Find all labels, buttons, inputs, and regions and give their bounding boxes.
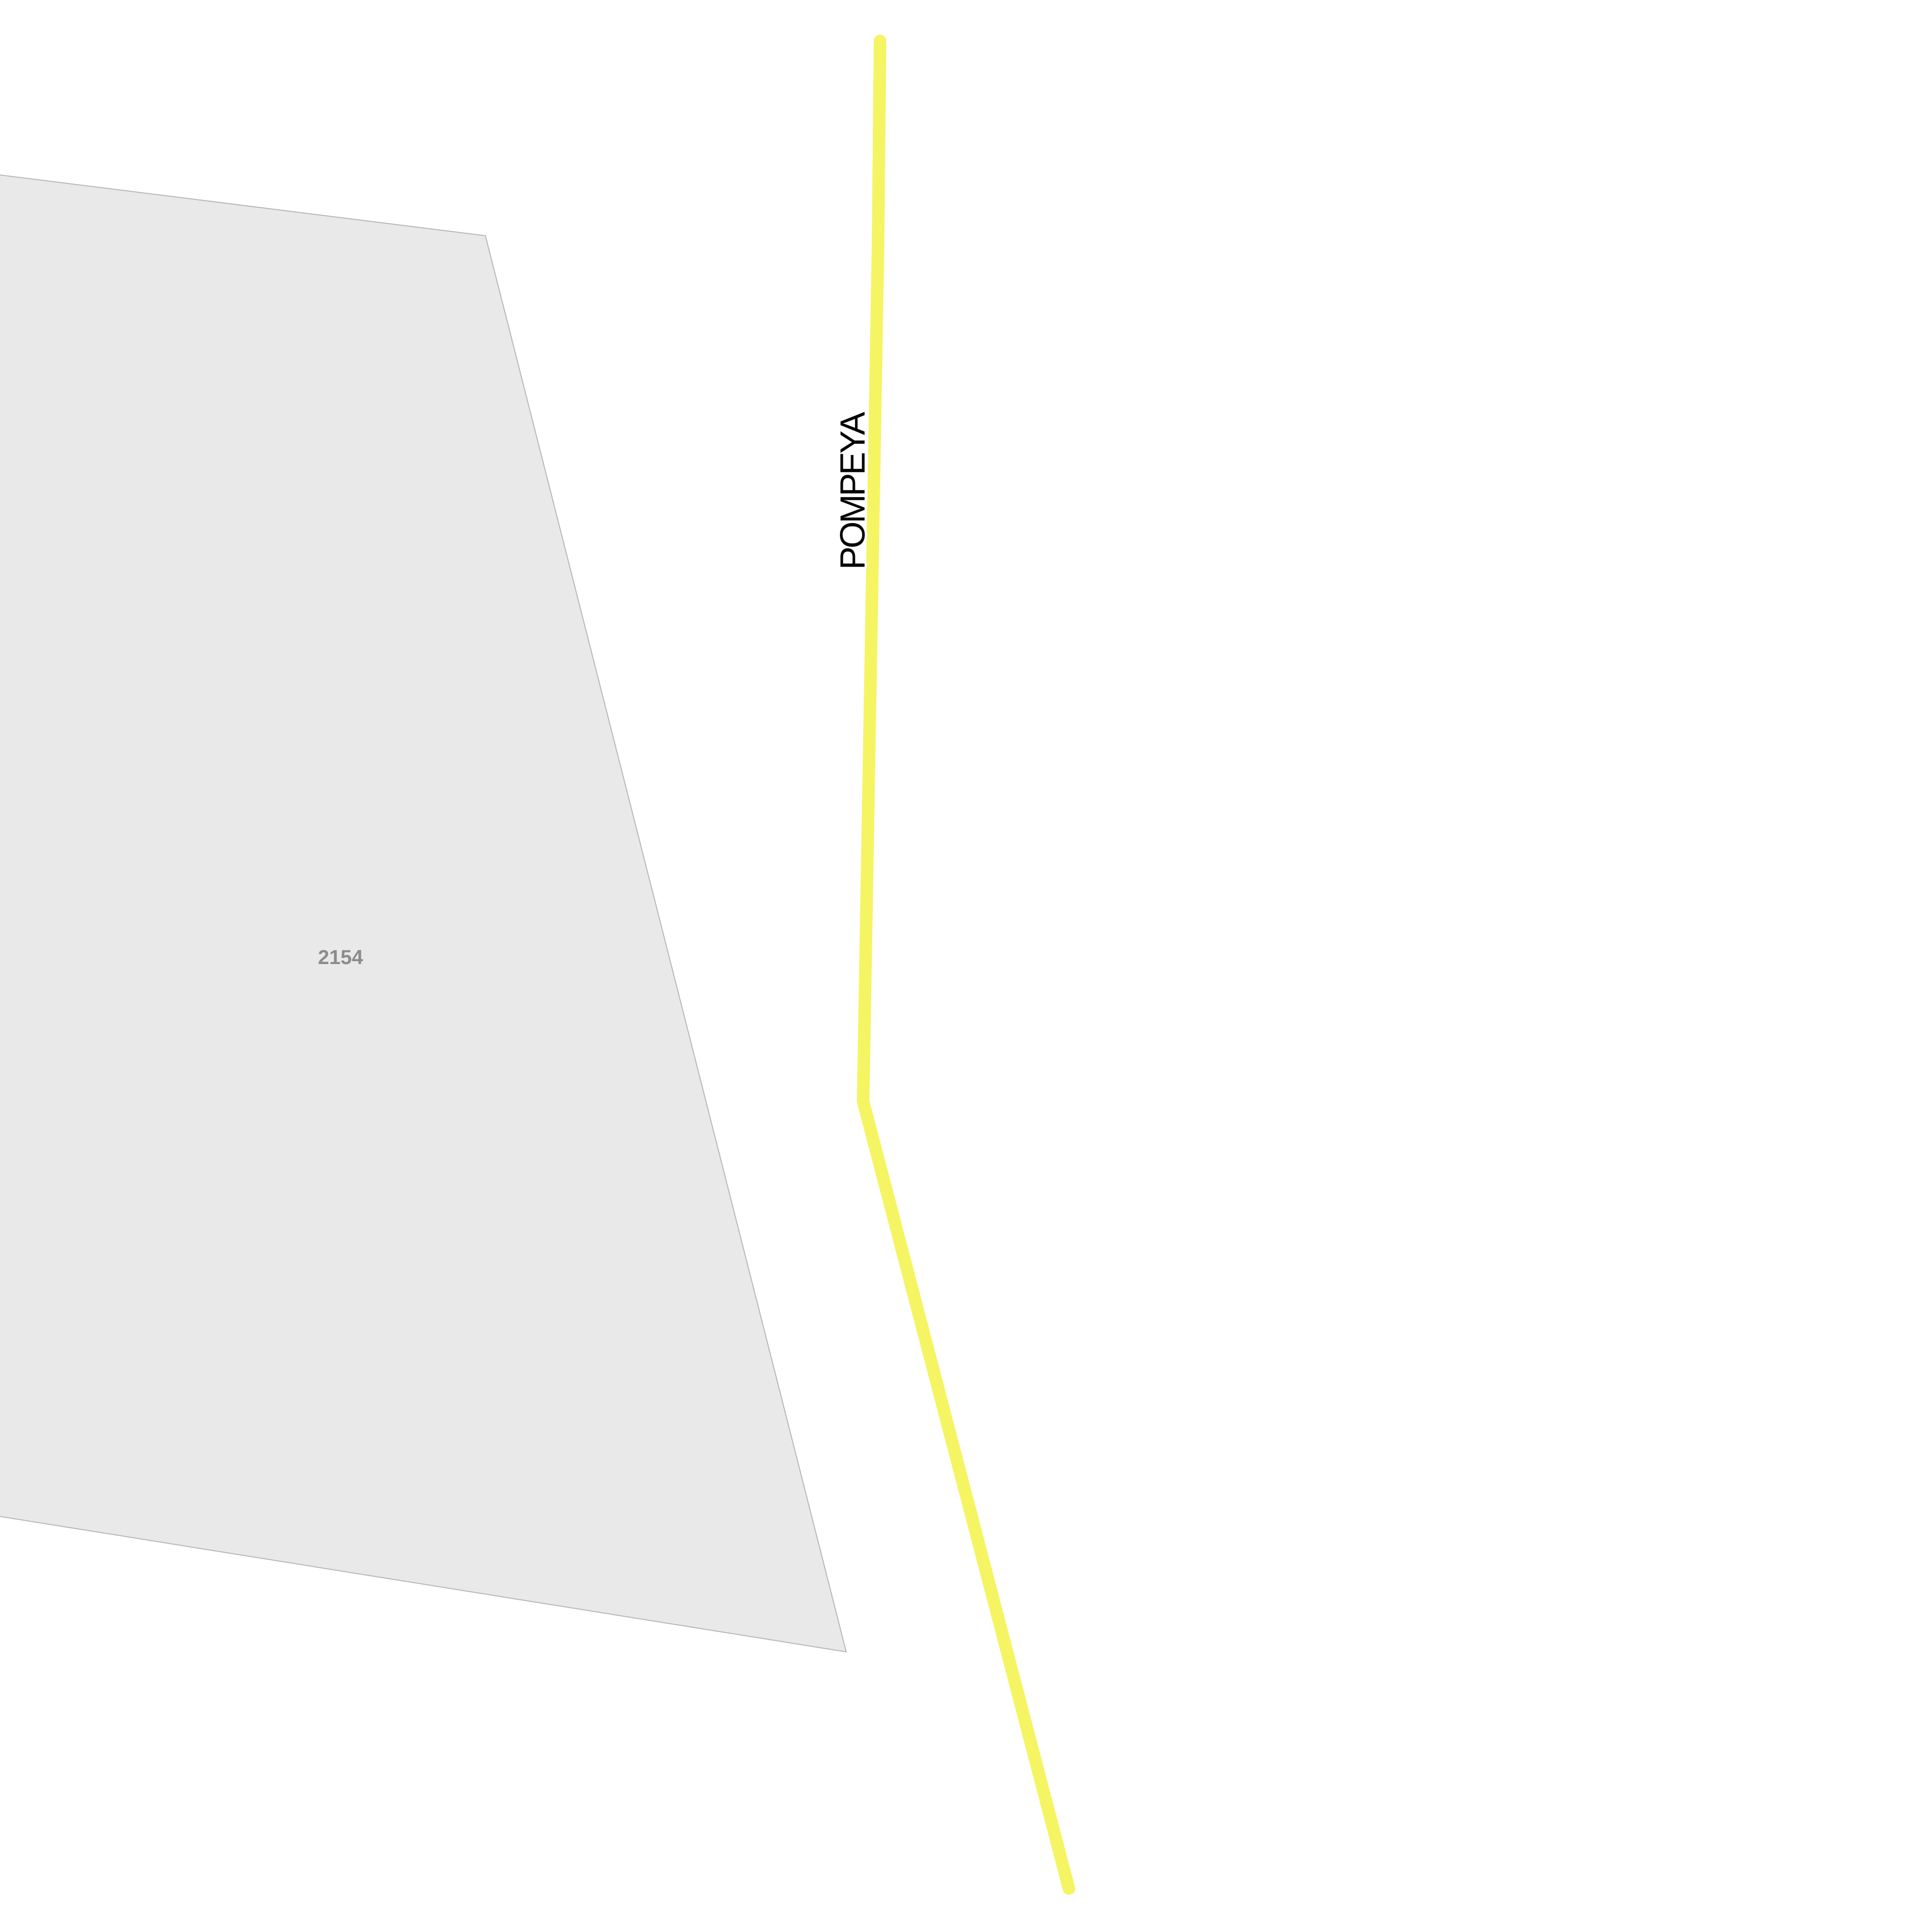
parcel-polygon[interactable] xyxy=(0,174,846,1652)
parcel-number-label: 2154 xyxy=(318,946,363,968)
map-svg[interactable]: 2154 POMPEYA xyxy=(0,0,1932,1932)
road-line[interactable] xyxy=(863,41,1069,1889)
road-name-label: POMPEYA xyxy=(834,412,872,570)
map-canvas[interactable]: 2154 POMPEYA xyxy=(0,0,1932,1932)
